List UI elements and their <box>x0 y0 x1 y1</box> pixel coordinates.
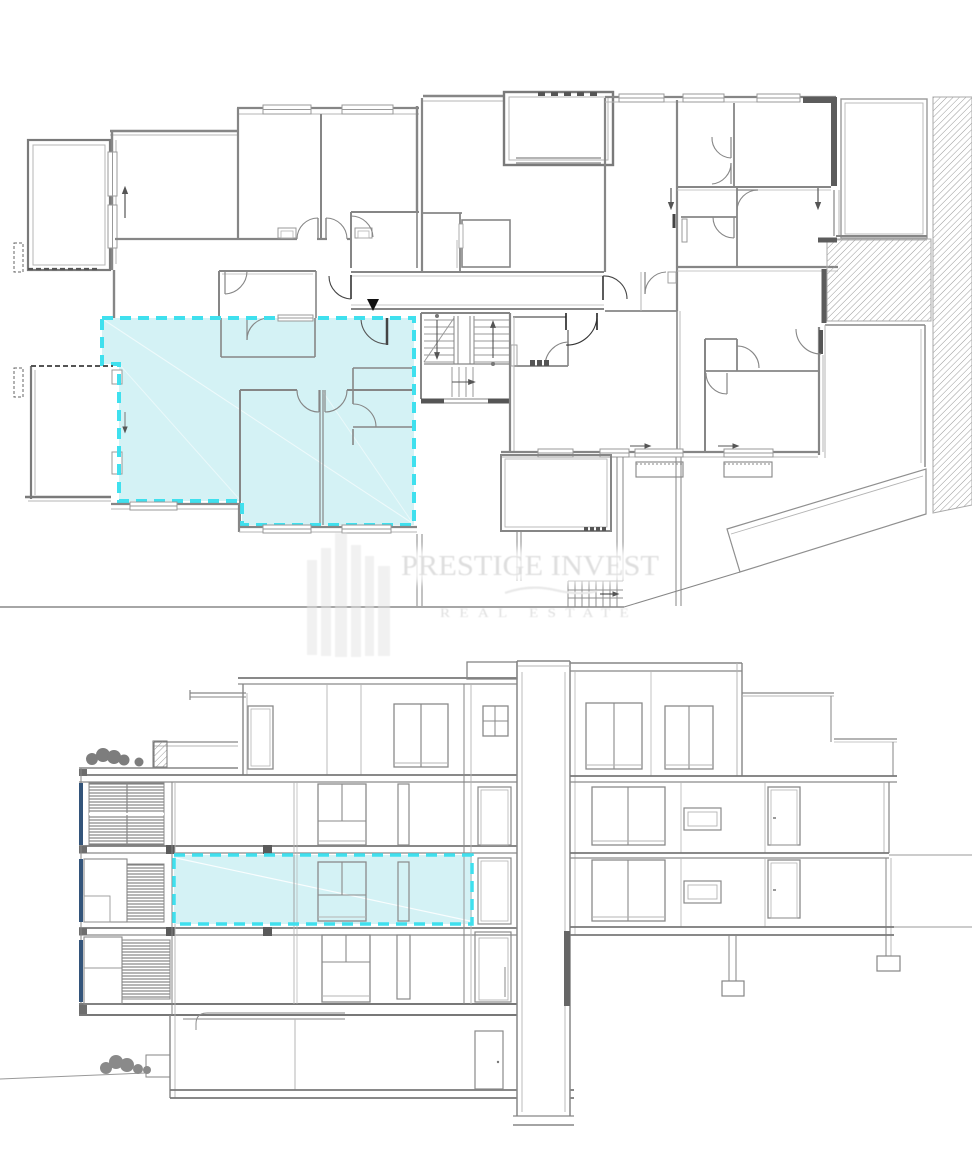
svg-text:REAL ESTATE: REAL ESTATE <box>440 605 638 620</box>
svg-text:PRESTIGE INVEST: PRESTIGE INVEST <box>401 551 659 582</box>
